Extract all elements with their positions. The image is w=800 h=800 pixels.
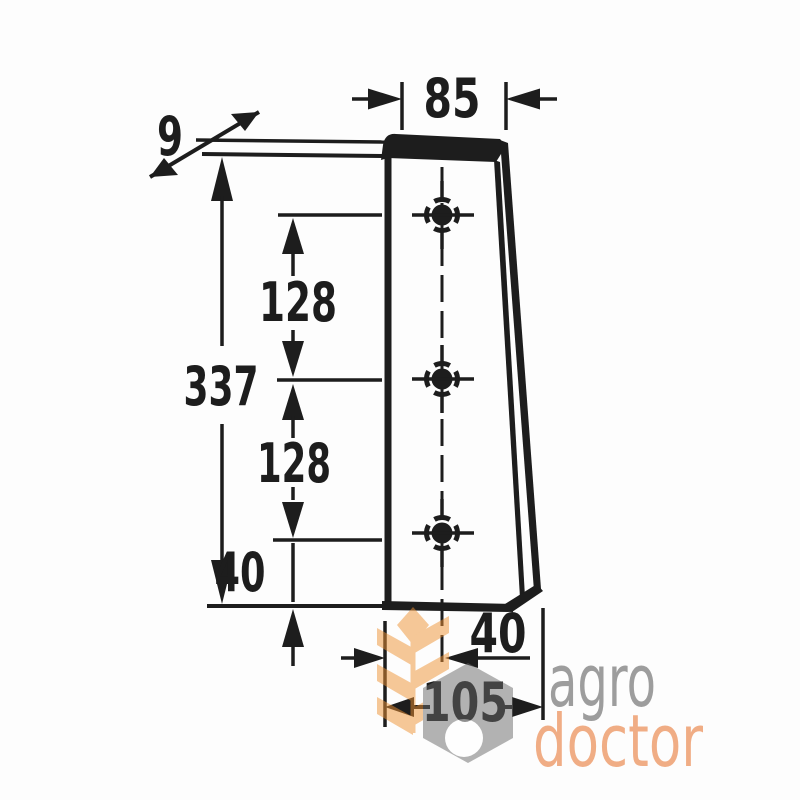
blade-technical-drawing: 85 9 337 128 128 xyxy=(0,0,800,800)
dim-label-last-hole-to-bottom: 40 xyxy=(215,541,266,604)
dim-last-hole-to-bottom: 40 xyxy=(215,541,305,666)
dim-hole-spacing-upper: 128 xyxy=(259,218,337,377)
dim-label-thickness: 9 xyxy=(157,105,183,168)
arrow-down-icon xyxy=(282,502,304,538)
dim-label-top-width: 85 xyxy=(424,67,481,130)
blade-top-edge xyxy=(381,134,506,162)
arrow-up-icon xyxy=(282,384,304,420)
arrow-up-icon xyxy=(282,218,304,254)
dim-label-hole-offset-horizontal: 40 xyxy=(470,602,527,665)
dim-label-overall-length: 337 xyxy=(184,355,259,418)
blade-left-edge xyxy=(385,152,392,606)
scanned-drawing-page: 85 9 337 128 128 xyxy=(0,0,800,800)
arrow-up-icon xyxy=(211,157,233,201)
arrow-up-icon xyxy=(282,609,304,647)
dim-top-width: 85 xyxy=(352,67,557,130)
nut-hole xyxy=(445,719,483,757)
arrow-down-icon xyxy=(282,341,304,377)
wheat-leaf-left xyxy=(377,664,413,702)
arrow-left-icon xyxy=(506,89,540,110)
dim-label-hole-spacing-upper: 128 xyxy=(259,271,337,334)
dim-thickness: 9 xyxy=(150,105,385,177)
thickness-line-upper xyxy=(196,140,385,142)
mounting-hole-bottom xyxy=(412,499,474,567)
logo-word-doctor: doctor xyxy=(533,699,703,783)
arrow-right-icon xyxy=(354,648,385,668)
agrodoctor-watermark: agro doctor xyxy=(377,607,703,783)
thickness-line-lower xyxy=(202,154,384,156)
mounting-hole-top xyxy=(412,181,474,249)
arrow-right-icon xyxy=(368,89,402,110)
dim-hole-spacing-lower: 128 xyxy=(257,384,331,538)
dim-label-hole-spacing-lower: 128 xyxy=(257,432,331,495)
mounting-hole-middle xyxy=(412,345,474,413)
blade-outline xyxy=(381,134,543,612)
